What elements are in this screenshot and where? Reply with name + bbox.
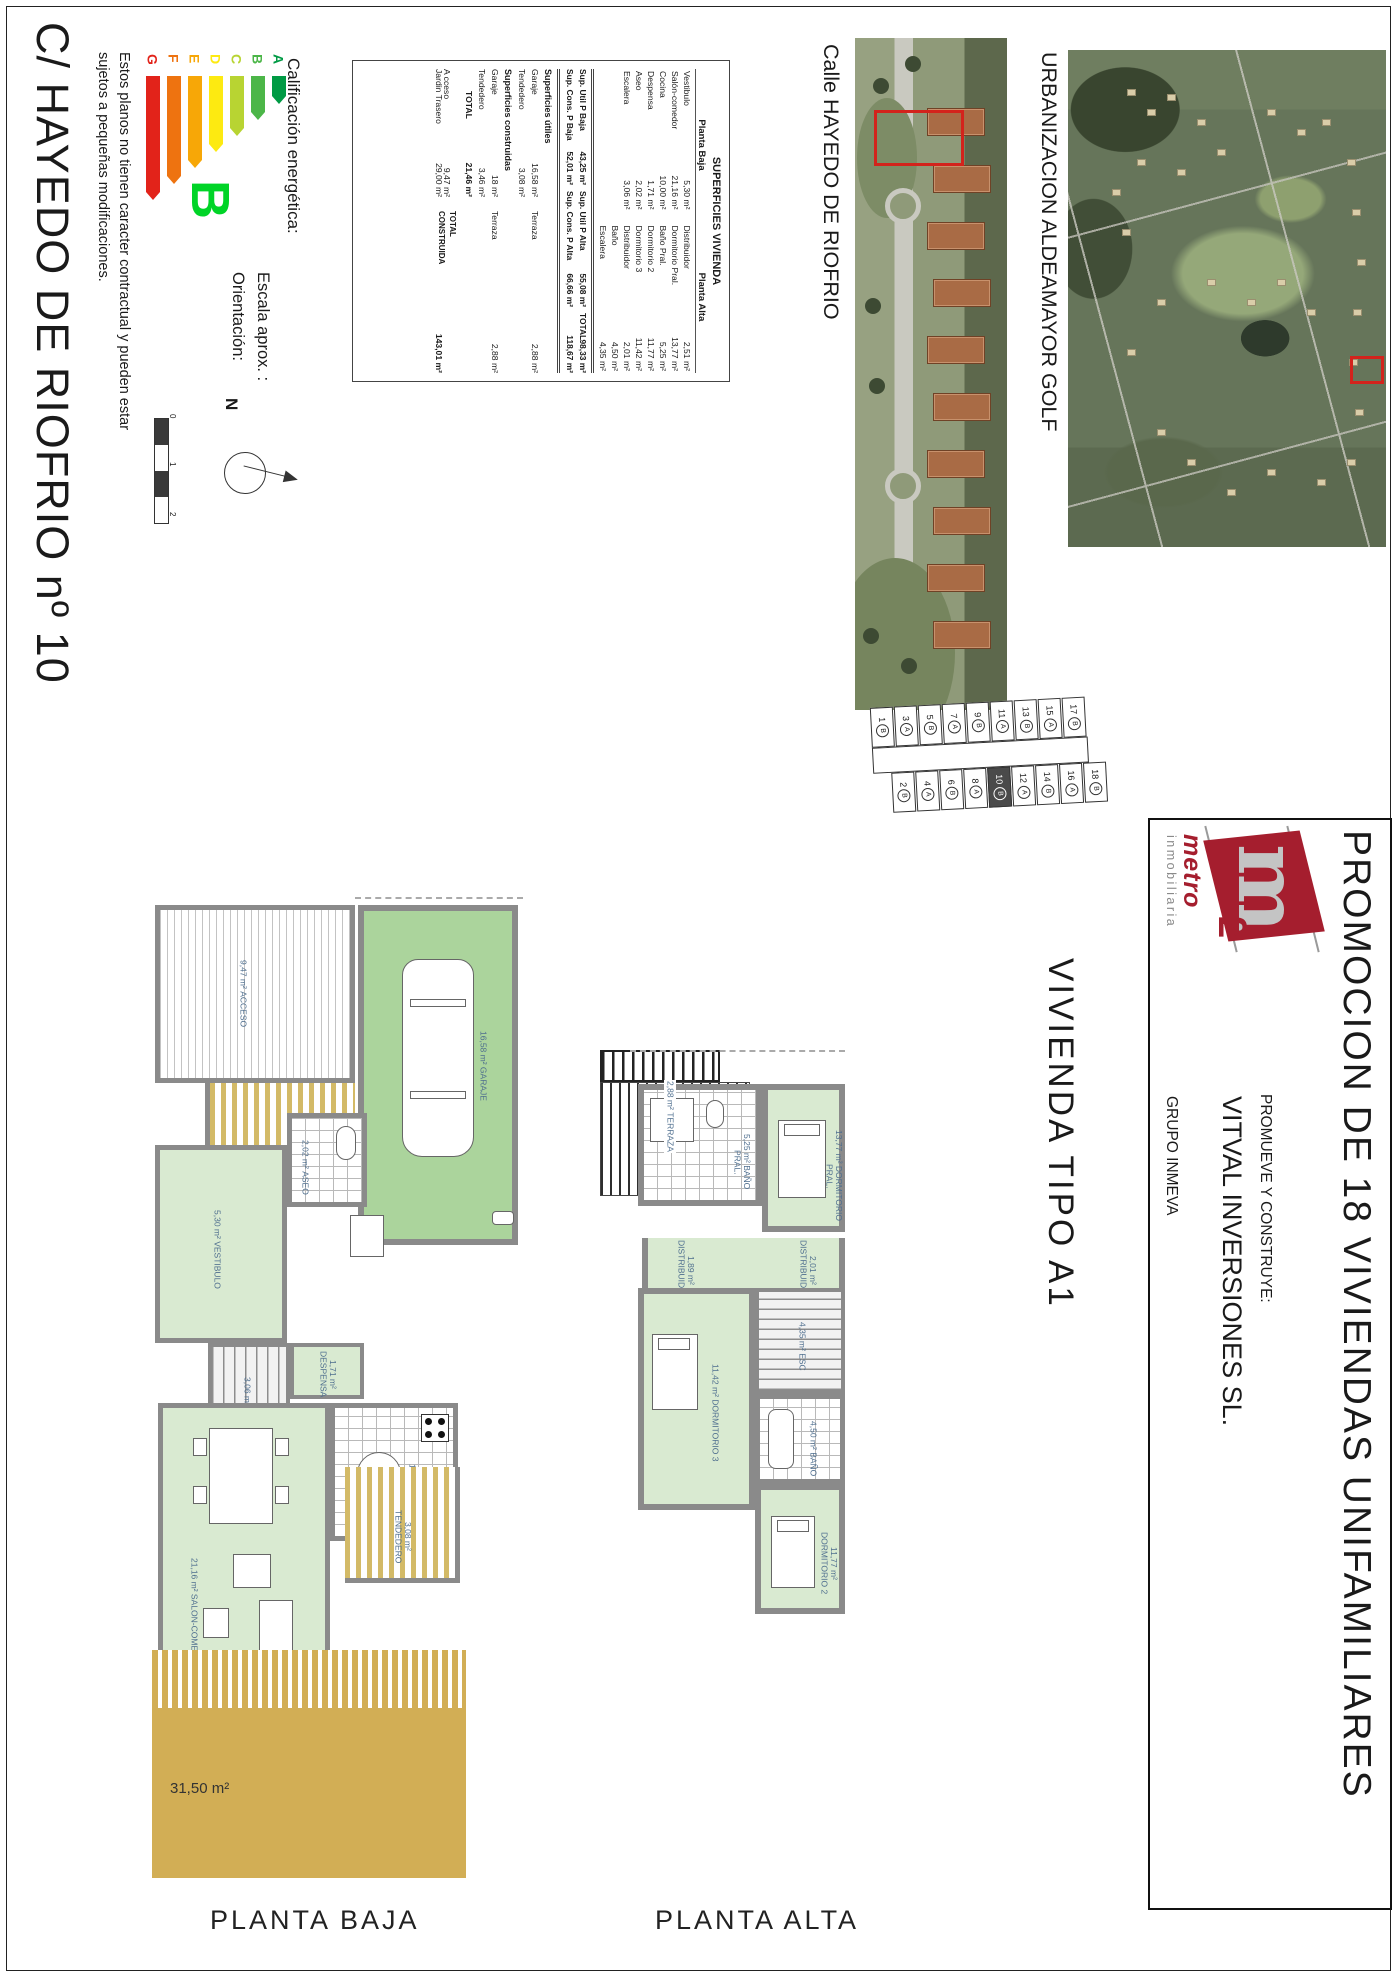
plot-15: 15A: [1038, 698, 1063, 739]
townhouse-row: [927, 450, 985, 478]
room-label-aseo: 2,02 m² ASEO: [300, 1140, 310, 1195]
total-construida-value: 143,01 m²: [433, 289, 444, 373]
house-cluster: [1158, 300, 1165, 305]
table-row: Aseo2,02 m²Dormitorio 311,42 m²: [633, 69, 645, 373]
shower-icon: [350, 1215, 384, 1257]
cons-alta-label: Sup. Cons. P Alta: [564, 185, 575, 261]
energy-bar-tip: [251, 112, 265, 120]
toilet-icon: [336, 1126, 356, 1160]
house-cluster: [1348, 160, 1355, 165]
house-cluster: [1308, 310, 1315, 315]
energy-rating-scale: GFEDCBA: [145, 54, 286, 200]
scale-tick-2: 2: [168, 512, 177, 516]
room-aseo: 2,02 m² ASEO: [287, 1113, 367, 1207]
table-row: Salón-comedor21,16 m²Dormitorio Pral.13,…: [669, 69, 681, 373]
house-cluster: [1158, 430, 1165, 435]
house-cluster: [1178, 170, 1185, 175]
energy-bar-E: [188, 76, 202, 160]
planta-baja-label: PLANTA BAJA: [210, 1905, 420, 1936]
car-rear-window: [410, 1091, 466, 1099]
roof-dashed-outline: [630, 1050, 845, 1052]
cons-tendedero-label: Tendedero: [476, 69, 487, 147]
surfaces-table-slot: SUPERFICIES VIVIENDA Planta Baja Planta …: [352, 60, 730, 382]
promueve-label: PROMUEVE Y CONSTRUYE:: [1256, 1094, 1274, 1303]
energy-bar-C: [230, 76, 244, 128]
energy-letter-C: C: [229, 54, 245, 74]
util-alta-label: Sup. Util P Alta: [577, 185, 588, 261]
room-bano: 4,50 m² BAÑO: [755, 1394, 845, 1484]
table-row: Baño4,50 m²: [609, 69, 621, 373]
energy-level-D: D: [208, 54, 223, 200]
townhouse-row: [933, 165, 991, 193]
plot-2: 2B: [891, 772, 916, 813]
disclaimer: Estos planos no tienen caracter contract…: [92, 52, 134, 430]
annex-total-value: 21,46 m²: [463, 147, 474, 197]
tree-icon: [873, 78, 889, 94]
energy-level-B: B: [250, 54, 265, 200]
energy-level-G: G: [145, 54, 160, 200]
cons-total-value: 118,67 m²: [564, 335, 575, 373]
townhouse-row: [927, 222, 985, 250]
toilet-icon: [706, 1100, 724, 1128]
totals-util-row: Sup. Util P Baja 43,25 m² Sup. Util P Al…: [576, 69, 589, 373]
planta-baja-plan: 9,47 m² ACCESO 16,58 m² GARAJE 5,30 m² V…: [150, 905, 520, 1880]
utiles-header: Superficies útiles: [541, 69, 555, 373]
pillow-icon: [784, 1124, 820, 1136]
utiles-terraza-label: Terraza: [529, 197, 540, 289]
room-dormitorio-2: 11,77 m² DORMITORIO 2: [755, 1484, 845, 1614]
house-cluster: [1268, 110, 1275, 115]
house-cluster: [1128, 90, 1135, 95]
armchair-icon: [233, 1554, 271, 1588]
cons-tendedero-value: 3,46 m²: [476, 147, 487, 197]
surfaces-table: SUPERFICIES VIVIENDA Planta Baja Planta …: [352, 60, 730, 382]
roundabout-icon: [885, 468, 921, 504]
plot-17: 17B: [1062, 697, 1087, 738]
room-label-tendedero: 3,08 m² TENDEDERO: [393, 1495, 412, 1578]
house-cluster: [1208, 280, 1215, 285]
pillow-icon: [658, 1338, 690, 1350]
golf-aerial-photo: [1068, 50, 1386, 547]
pillow-icon: [777, 1520, 809, 1532]
room-label-bano-pral: 5,25 m² BAÑO PRAL.: [732, 1124, 751, 1200]
house-cluster: [1138, 160, 1145, 165]
construidas-row-2: Tendedero 3,46 m²: [475, 69, 488, 373]
north-arrow-icon: [224, 452, 266, 494]
room-label-escalera-alta: 4,35 m² ESC: [797, 1322, 807, 1371]
house-cluster: [1168, 95, 1175, 100]
energy-bar-F: [167, 76, 181, 176]
garden-stripes: [152, 1650, 466, 1708]
cons-terraza-value: 2,88 m²: [489, 289, 500, 373]
room-escalera-alta: 4,35 m² ESC: [755, 1288, 845, 1394]
energy-bar-B: [251, 76, 265, 112]
cons-alta-value: 66,66 m²: [564, 261, 575, 307]
disclaimer-line-2: sujetos a pequeñas modificaciones.: [92, 52, 113, 430]
tree-icon: [865, 298, 881, 314]
jardin-value: 29,00 m²: [433, 147, 444, 197]
house-cluster: [1358, 260, 1365, 265]
plot-3: 3A: [894, 705, 919, 746]
energy-rating: B: [179, 180, 241, 219]
tree-icon: [869, 378, 885, 394]
energy-bar-G: [146, 76, 160, 192]
urbanizacion-photo-label: URBANIZACION ALDEAMAYOR GOLF: [1036, 52, 1061, 432]
room-label-dormitorio-2: 11,77 m² DORMITORIO 2: [819, 1518, 838, 1608]
logo-metro-text: metro: [1177, 834, 1206, 908]
table-row: Despensa1,71 m²Dormitorio 211,77 m²: [645, 69, 657, 373]
sheet-title: C/ HAYEDO DE RIOFRIO nº 10: [26, 22, 78, 684]
room-garaje: 16,58 m² GARAJE: [358, 905, 518, 1245]
planta-alta-plan: 5,25 m² BAÑO PRAL. 13,77 m² DORMITORIO P…: [600, 1050, 845, 1670]
cons-baja-label: Sup. Cons. P Baja: [564, 69, 575, 141]
plan-sheet: C/ HAYEDO DE RIOFRIO nº 10 Estos planos …: [0, 0, 1397, 1977]
plot-14: 14B: [1035, 764, 1060, 805]
energy-bar-tip: [230, 128, 244, 136]
house-cluster: [1188, 460, 1195, 465]
jardin-label: Jardin Trasero: [433, 69, 444, 147]
cons-garaje-label: Garaje: [489, 69, 500, 147]
utiles-terraza-value: 2,88 m²: [529, 289, 540, 373]
room-label-despensa: 1,71 m² DESPENSA: [318, 1351, 337, 1397]
house-cluster: [1356, 410, 1363, 415]
plot-18: 18B: [1083, 762, 1108, 803]
energy-letter-B: B: [250, 54, 266, 74]
plot-9: 9B: [966, 702, 991, 743]
house-cluster: [1228, 490, 1235, 495]
orientation-label: Orientación:: [228, 272, 247, 361]
plot-7: 7A: [942, 703, 967, 744]
side-table-icon: [203, 1608, 229, 1638]
scale-bar: [154, 418, 169, 524]
table-row: Cocina10,00 m²Baño Pral.5,25 m²: [657, 69, 669, 373]
townhouse-row: [933, 393, 991, 421]
construidas-row-1: Garaje 18 m² Terraza 2,88 m²: [488, 69, 501, 373]
cons-terraza-label: Terraza: [489, 197, 500, 289]
room-label-garaje: 16,58 m² GARAJE: [478, 1031, 488, 1101]
room-label-vestibulo: 5,30 m² VESTIBULO: [212, 1210, 222, 1289]
planta-alta-label: PLANTA ALTA: [655, 1905, 859, 1936]
energy-letter-D: D: [208, 54, 224, 74]
townhouse-row: [927, 564, 985, 592]
jardin-trasero: 31,50 m²: [152, 1650, 466, 1878]
utiles-row-1: Garaje 16,58 m² Terraza 2,88 m²: [528, 69, 541, 373]
utiles-tendedero-value: 3,08 m²: [516, 147, 527, 197]
energy-letter-E: E: [187, 54, 203, 74]
plot-6: 6B: [939, 769, 964, 810]
calle-photo-label: Calle HAYEDO DE RIOFRIO: [818, 44, 843, 320]
house-cluster: [1298, 130, 1305, 135]
energy-bar-D: [209, 76, 223, 144]
house-cluster: [1268, 470, 1275, 475]
energy-bar-tip: [209, 144, 223, 152]
tree-icon: [901, 658, 917, 674]
table-row: Escalera3,06 m²Distribuidor2,01 m²: [621, 69, 633, 373]
total-label: TOTAL: [577, 307, 588, 335]
energy-label: Calificación energética:: [283, 58, 303, 234]
townhouse-row: [933, 507, 991, 535]
util-baja-value: 43,25 m²: [577, 141, 588, 185]
room-salon-comedor: 21,16 m² SALON-COMEDOR: [158, 1403, 330, 1685]
col-planta-baja: Planta Baja: [696, 69, 707, 221]
house-cluster: [1148, 110, 1155, 115]
annex-total-label: TOTAL: [463, 69, 474, 147]
stair-railing: [600, 1050, 720, 1082]
townhouse-row: [933, 621, 991, 649]
util-total-value: 98,33 m²: [577, 335, 588, 373]
chair-icon: [275, 1438, 289, 1456]
room-acceso: 9,47 m² ACCESO: [155, 905, 355, 1083]
house-cluster: [1353, 210, 1360, 215]
util-baja-label: Sup. Util P Baja: [577, 69, 588, 141]
rooms-table: Vestibulo5,30 m²Distribuidor2,51 m²Salón…: [597, 69, 693, 373]
metro-inmobiliaria-logo: m 2 metro inmobiliaria: [1152, 830, 1318, 950]
house-cluster: [1113, 190, 1120, 195]
energy-letter-F: F: [166, 54, 182, 74]
table-row: Escalera4,35 m²: [597, 69, 609, 373]
north-letter: N: [221, 398, 241, 410]
plot-1: 1B: [870, 707, 895, 748]
util-alta-value: 55,08 m²: [577, 261, 588, 307]
chair-icon: [275, 1486, 289, 1504]
room-dormitorio-pral: 13,77 m² DORMITORIO PRAL.: [762, 1084, 845, 1232]
plot-11: 11A: [990, 700, 1015, 741]
room-tendedero: 3,08 m² TENDEDERO: [345, 1467, 460, 1583]
room-bano-pral: 5,25 m² BAÑO PRAL.: [638, 1084, 762, 1206]
room-distribuidor: 1,89 m² DISTRIBUIDOR 2,01 m² DISTRIBUIDO…: [642, 1238, 845, 1288]
vivienda-tipo-label: VIVIENDA TIPO A1: [1040, 958, 1080, 1309]
energy-bar-tip: [188, 160, 202, 168]
utiles-garaje-label: Garaje: [529, 69, 540, 147]
room-label-dormitorio-3: 11,42 m² DORMITORIO 3: [710, 1364, 720, 1461]
plot-5: 5B: [918, 704, 943, 745]
location-marker-calle: [874, 110, 964, 166]
plot-10: 10B: [987, 767, 1012, 808]
house-cluster: [1348, 460, 1355, 465]
room-dormitorio-3: 11,42 m² DORMITORIO 3: [638, 1288, 755, 1510]
house-cluster: [1123, 230, 1130, 235]
surfaces-table-subheader: Planta Baja Planta Alta: [695, 69, 707, 373]
acceso-row: A cceso 9,47 m² TOTAL CONSTRUIDA: [445, 69, 458, 373]
house-cluster: [1318, 480, 1325, 485]
room-label-bano: 4,50 m² BAÑO: [808, 1421, 818, 1476]
logo-slot: m 2 metro inmobiliaria: [1152, 830, 1318, 950]
boiler-icon: [492, 1211, 514, 1225]
developer-name: VITVAL INVERSIONES SL.: [1216, 1096, 1247, 1426]
dining-table-icon: [209, 1428, 273, 1524]
utiles-tendedero-label: Tendedero: [516, 69, 527, 147]
stove-icon: [421, 1414, 449, 1442]
house-cluster: [1128, 350, 1135, 355]
house-cluster: [1248, 300, 1255, 305]
cons-baja-value: 52,01 m²: [564, 141, 575, 185]
surfaces-table-title: SUPERFICIES VIVIENDA: [710, 69, 721, 373]
construidas-header: Superficies construidas: [501, 69, 515, 373]
house-cluster: [1323, 120, 1330, 125]
promo-title: PROMOCION DE 18 VIVIENDAS UNIFAMILIARES: [1334, 830, 1378, 1890]
roundabout-icon: [885, 188, 921, 224]
tree-icon: [905, 56, 921, 72]
car-windshield: [410, 999, 466, 1007]
room-label-terraza: 2,88 m² TERRAZA: [664, 1080, 676, 1153]
car-icon: [402, 959, 474, 1157]
garden-area-label: 31,50 m²: [170, 1780, 229, 1797]
garage-dashed-outline: [355, 897, 523, 899]
energy-level-E: E: [187, 54, 202, 200]
townhouse-row: [927, 336, 985, 364]
logo-squared: 2: [1209, 916, 1254, 938]
room-vestibulo: 5,30 m² VESTIBULO: [155, 1145, 287, 1343]
room-despensa: 1,71 m² DESPENSA: [290, 1343, 364, 1399]
plot-4: 4A: [915, 770, 940, 811]
road-network: [1068, 50, 1386, 547]
plot-16: 16A: [1059, 763, 1084, 804]
scale-label: Escala aprox. :: [253, 272, 272, 381]
plot-12: 12A: [1011, 765, 1036, 806]
bathtub-icon: [768, 1409, 794, 1469]
plot-8: 8A: [963, 768, 988, 809]
room-label-acceso: 9,47 m² ACCESO: [238, 960, 248, 1027]
annex-total-row: TOTAL 21,46 m²: [462, 69, 475, 373]
energy-letter-G: G: [145, 54, 161, 74]
house-cluster: [1198, 120, 1205, 125]
house-cluster: [1218, 150, 1225, 155]
site-plan: 1B3A5B7A9B11A13B15A17B 2B4A6B8A10B12A14B…: [869, 684, 1099, 885]
room-label-dormitorio-pral: 13,77 m² DORMITORIO PRAL.: [824, 1126, 843, 1226]
chair-icon: [193, 1486, 207, 1504]
energy-level-C: C: [229, 54, 244, 200]
logo-inmobiliaria-text: inmobiliaria: [1164, 835, 1178, 928]
energy-level-F: F: [166, 54, 181, 200]
plot-13: 13B: [1014, 699, 1039, 740]
utiles-row-2: Tendedero 3,08 m²: [515, 69, 528, 373]
table-row: Vestibulo5,30 m²Distribuidor2,51 m²: [681, 69, 693, 373]
cons-garaje-value: 18 m²: [489, 147, 500, 197]
house-cluster: [1278, 280, 1285, 285]
chair-icon: [193, 1438, 207, 1456]
disclaimer-line-1: Estos planos no tienen caracter contract…: [113, 52, 134, 430]
utiles-garaje-value: 16,58 m²: [529, 147, 540, 197]
grupo-name: GRUPO INMEVA: [1162, 1096, 1180, 1215]
totals-cons-row: Sup. Cons. P Baja 52,01 m² Sup. Cons. P …: [563, 69, 576, 373]
scale-tick-1: 1: [168, 462, 177, 466]
total-construida-label: TOTAL CONSTRUIDA: [436, 197, 458, 289]
location-marker-golf: [1350, 356, 1384, 384]
energy-bar-tip: [146, 192, 160, 200]
townhouse-row: [933, 279, 991, 307]
tree-icon: [863, 628, 879, 644]
scale-tick-0: 0: [168, 414, 177, 418]
house-cluster: [1354, 310, 1361, 315]
col-planta-alta: Planta Alta: [696, 221, 707, 373]
